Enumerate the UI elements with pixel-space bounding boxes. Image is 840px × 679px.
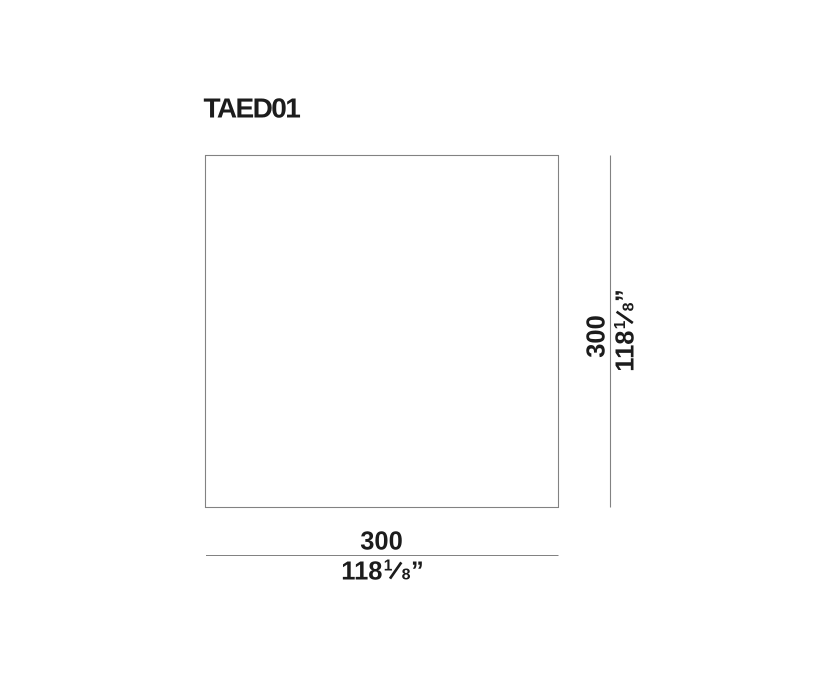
svg-text:1: 1 bbox=[384, 558, 393, 575]
svg-text:”: ” bbox=[612, 289, 640, 302]
svg-text:118: 118 bbox=[341, 557, 382, 585]
svg-text:300: 300 bbox=[360, 528, 403, 556]
svg-text:118: 118 bbox=[612, 331, 640, 372]
svg-text:1: 1 bbox=[612, 320, 629, 329]
svg-text:8: 8 bbox=[402, 566, 411, 583]
svg-text:TAED01: TAED01 bbox=[204, 93, 301, 124]
svg-text:8: 8 bbox=[621, 302, 638, 311]
svg-text:”: ” bbox=[411, 557, 424, 585]
svg-text:300: 300 bbox=[583, 315, 611, 358]
